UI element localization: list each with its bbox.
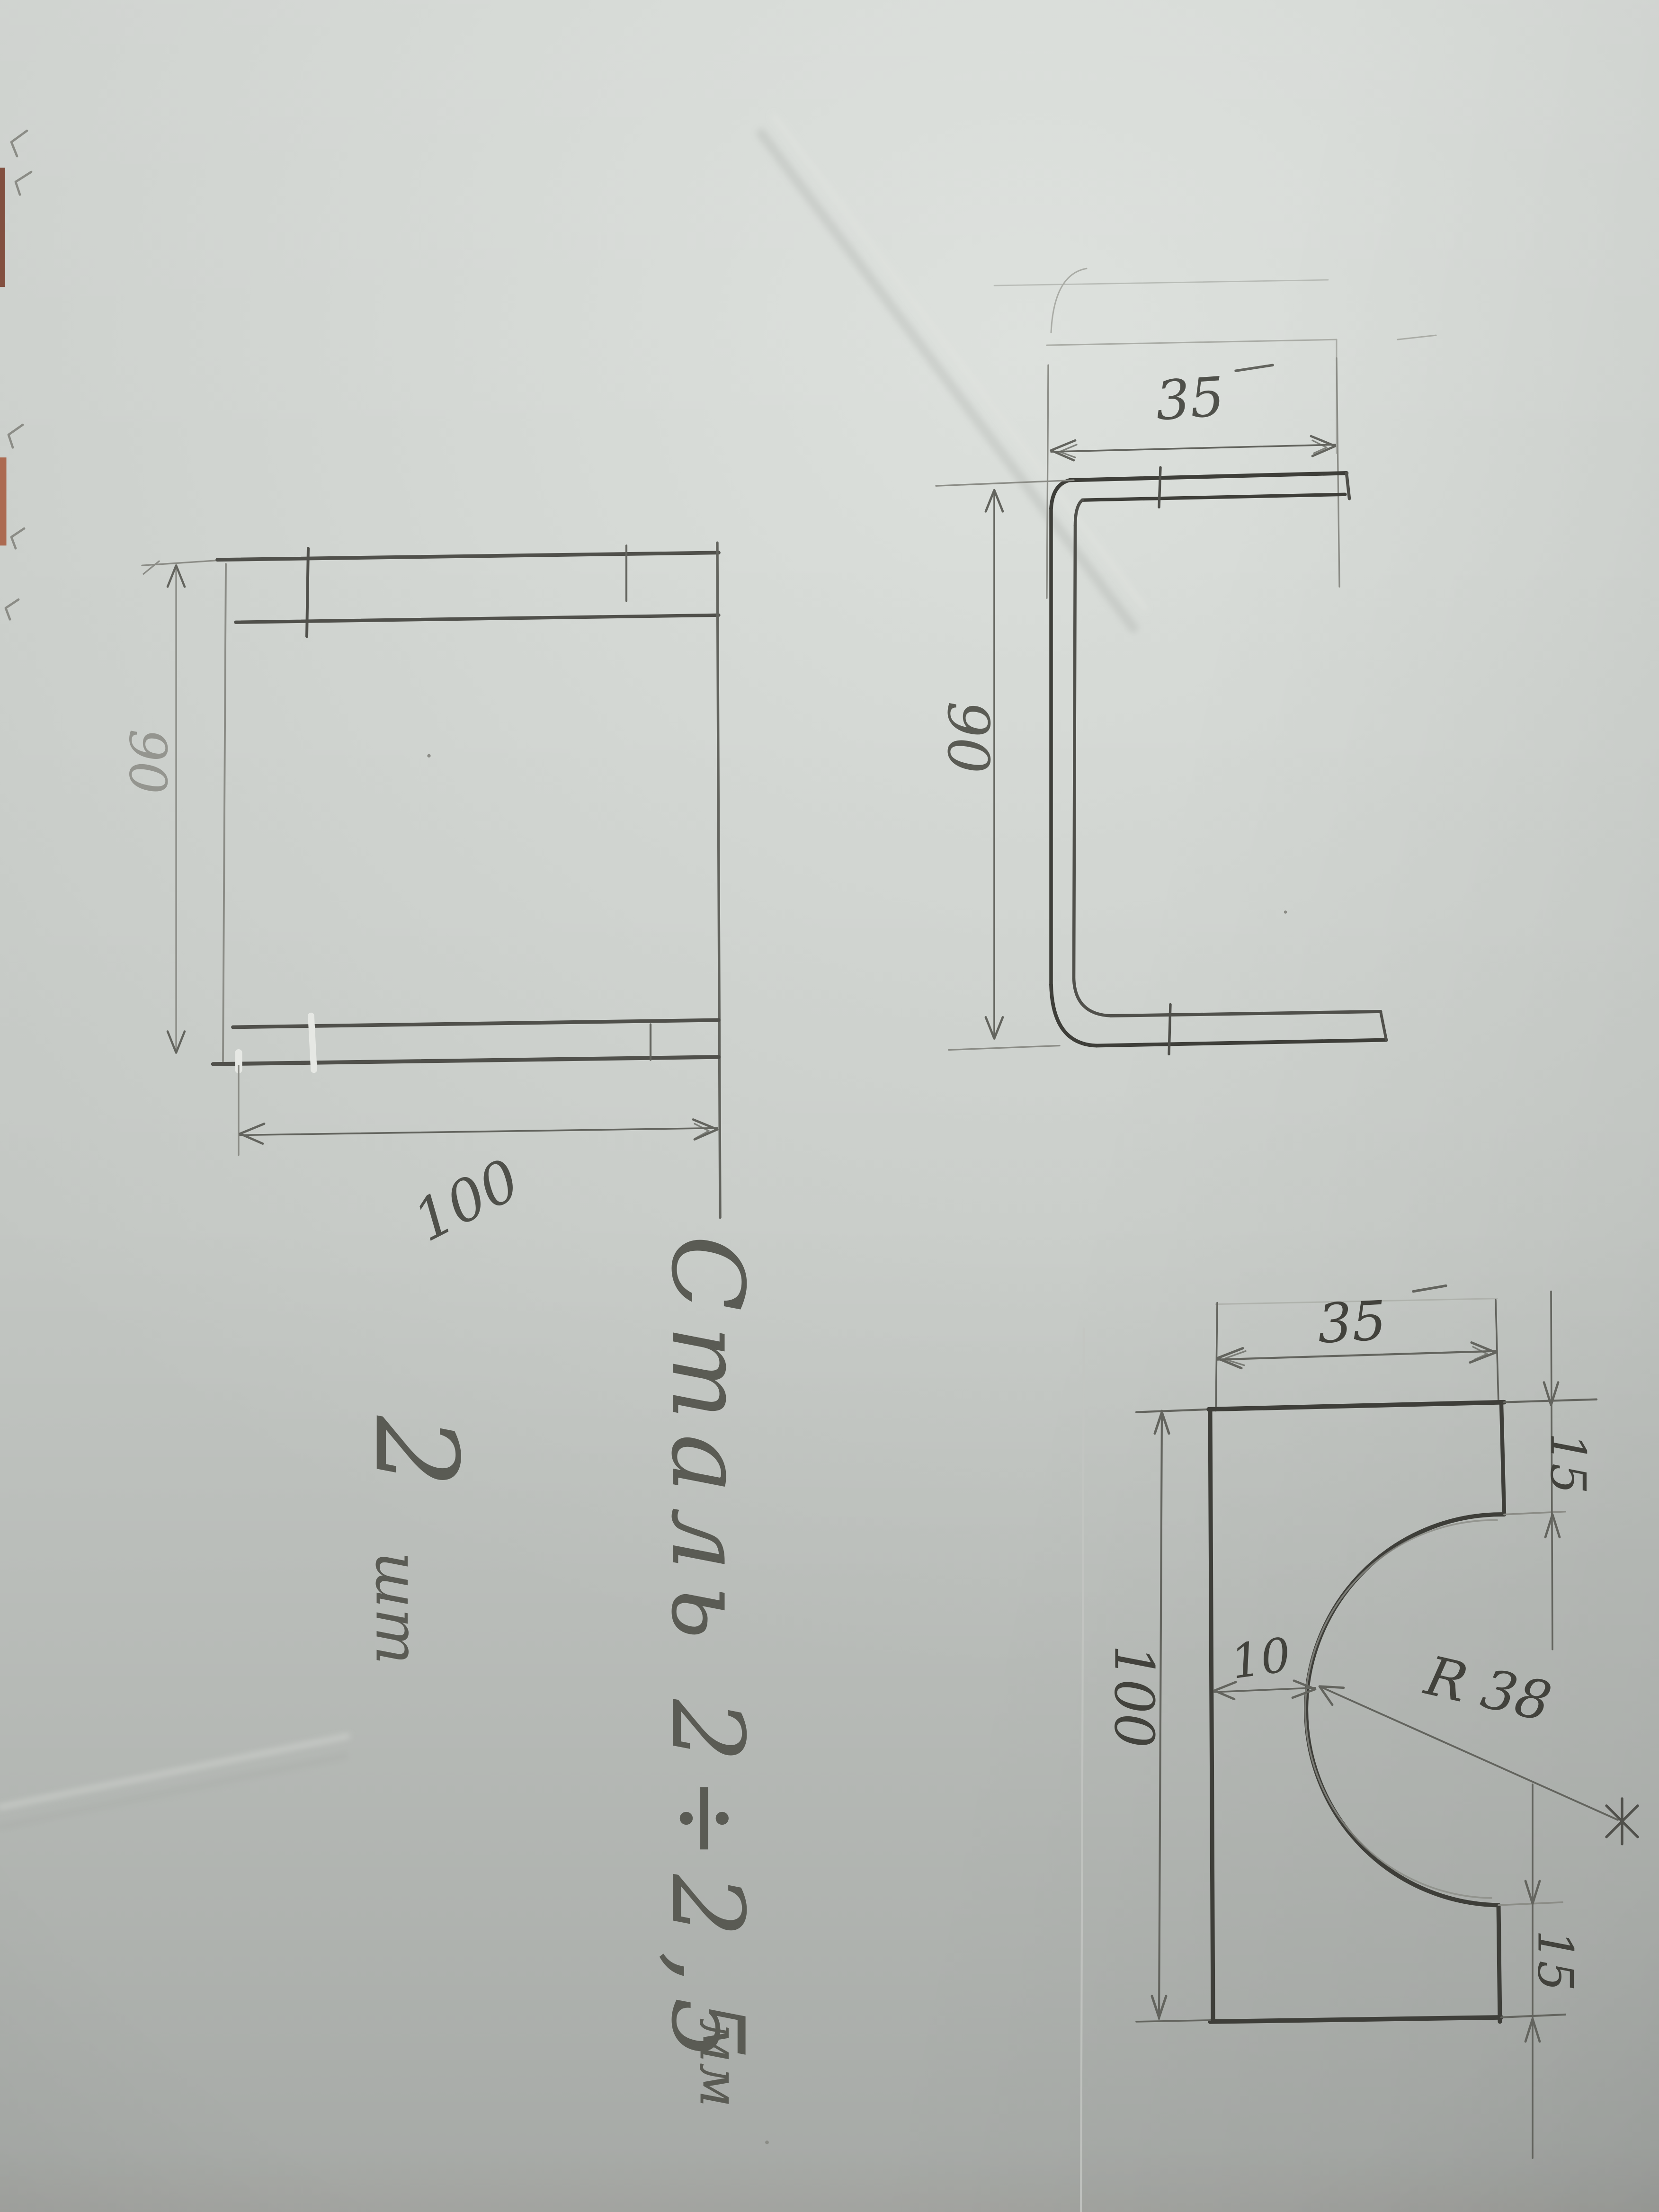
stray-mark (1236, 365, 1273, 371)
profile-flange-label: 35 (1153, 365, 1226, 433)
dim-line-flange (1051, 445, 1335, 452)
pencil-speck (427, 754, 430, 758)
bend-bottom-inner (1074, 979, 1111, 1016)
edge-checkmark (6, 599, 18, 619)
cutout-pattern-view: 35 15 100 10 (1103, 1286, 1638, 2158)
extension-line (949, 1045, 1060, 1050)
pencil-speck (1284, 910, 1287, 914)
pattern-width-label: 35 (1316, 1289, 1388, 1355)
sketch-photo: 90 100 (0, 0, 1659, 2212)
edge-checkmark (16, 172, 31, 195)
edge-checkmark (11, 528, 24, 548)
outline-top (1209, 1402, 1504, 1409)
construction-line (1398, 335, 1436, 339)
outline-right (717, 543, 720, 1217)
quantity-unit-text: шт (363, 1552, 432, 1665)
outline-bottom-inner (233, 1020, 719, 1027)
center-mark-asterisk (1606, 1799, 1638, 1844)
outline-bottom-outer (213, 1057, 719, 1064)
extension-tick (1498, 1902, 1562, 1905)
construction-corner (1051, 268, 1087, 332)
flange-top-outer (1070, 473, 1347, 480)
outline-right-bottom-tab (1498, 1905, 1500, 2022)
extension-hook (143, 561, 159, 574)
crease-diagonal-shadow (761, 134, 1133, 628)
material-note: Сталь 2÷2,5 мм (650, 1235, 766, 2108)
dim-line-offset (1214, 1688, 1315, 1692)
front-view: 90 100 (118, 543, 720, 1255)
edge-checkmark (9, 425, 23, 447)
pattern-radius-label: R 38 (1418, 1644, 1557, 1734)
material-unit-text: мм (688, 2018, 751, 2107)
crease-diagonal-light (774, 116, 1145, 608)
bend-tick (307, 548, 308, 636)
edge-checkmark (11, 131, 27, 156)
web-inner (1074, 526, 1075, 979)
outline-top-outer (217, 553, 719, 560)
arrowhead-left (240, 1124, 264, 1144)
flange-bottom-inner (1111, 1011, 1381, 1016)
bend-tick (1159, 467, 1160, 507)
extension-line (1136, 1409, 1210, 1412)
pattern-height-label: 100 (1103, 1645, 1166, 1748)
pattern-tab-top-label: 15 (1539, 1433, 1596, 1494)
pattern-tab-bottom-label: 15 (1526, 1930, 1583, 1991)
crease-bottomleft-light (0, 1736, 348, 1807)
front-height-label: 90 (118, 729, 177, 794)
bend-bottom-outer (1051, 984, 1097, 1045)
profile-view: 35 90 (935, 268, 1436, 1054)
outline-right-top-tab (1501, 1404, 1504, 1515)
outline-left (1210, 1409, 1213, 2022)
flange-end-cap (1347, 473, 1349, 499)
crease-vertical (1081, 1329, 1084, 2212)
quantity-note: 2 шт (350, 1415, 482, 1665)
flange-top-inner (1082, 494, 1345, 500)
bend-tick (1169, 1004, 1170, 1054)
pencil-speck (765, 2141, 769, 2144)
extension-line (1216, 1303, 1217, 1411)
stray-mark (1413, 1286, 1446, 1292)
pattern-offset-label: 10 (1228, 1628, 1294, 1690)
outline-bottom (1210, 2017, 1501, 2022)
dim-line-width (240, 1128, 717, 1135)
table-edge-strip-light (0, 457, 7, 545)
construction-line (1047, 339, 1337, 345)
quantity-text: 2 (350, 1415, 482, 1488)
flange-end-cap (1381, 1011, 1386, 1040)
construction-line (994, 280, 1328, 285)
front-width-label: 100 (403, 1147, 530, 1255)
paper-artifacts (0, 116, 1287, 2212)
crease-bottomleft-shadow (0, 1756, 345, 1827)
outline-left (223, 564, 226, 1061)
correction-fluid-tick (311, 1016, 314, 1070)
extension-tick (1504, 1512, 1565, 1515)
material-text: Сталь 2÷2,5 (650, 1235, 766, 2075)
extension-line (1136, 2020, 1210, 2022)
flange-bottom-outer (1097, 1040, 1386, 1045)
table-edge-strip-dark (0, 168, 5, 287)
pencil-drawing-canvas: 90 100 (0, 0, 1659, 2212)
profile-height-label: 90 (935, 701, 1000, 774)
